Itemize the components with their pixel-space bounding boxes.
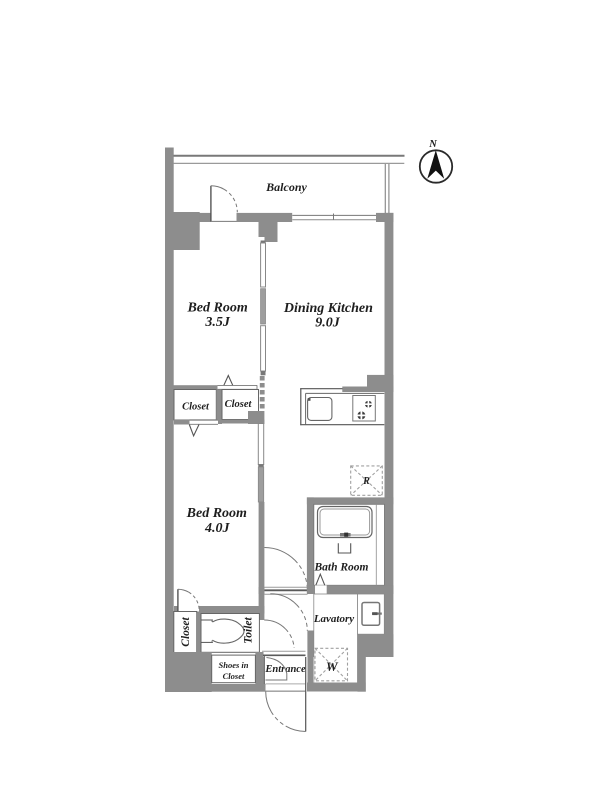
svg-text:Toilet: Toilet	[243, 616, 255, 643]
svg-text:9.0J: 9.0J	[315, 316, 341, 331]
svg-text:W: W	[326, 659, 339, 674]
svg-text:Closet: Closet	[225, 399, 253, 410]
svg-text:3.5J: 3.5J	[204, 315, 231, 330]
svg-text:Closet: Closet	[180, 617, 192, 647]
svg-text:Bed Room: Bed Room	[186, 506, 247, 521]
svg-text:Balcony: Balcony	[265, 180, 307, 194]
svg-text:N: N	[428, 139, 437, 150]
svg-text:Lavatory: Lavatory	[313, 613, 354, 625]
svg-text:Dining Kitchen: Dining Kitchen	[283, 301, 373, 316]
svg-text:Closet: Closet	[182, 402, 210, 413]
svg-text:R: R	[362, 476, 370, 487]
svg-text:Shoes in: Shoes in	[219, 660, 249, 670]
svg-text:Bath Room: Bath Room	[313, 562, 368, 574]
svg-text:4.0J: 4.0J	[204, 521, 231, 536]
svg-text:Closet: Closet	[223, 671, 245, 681]
svg-text:Bed Room: Bed Room	[186, 301, 247, 316]
